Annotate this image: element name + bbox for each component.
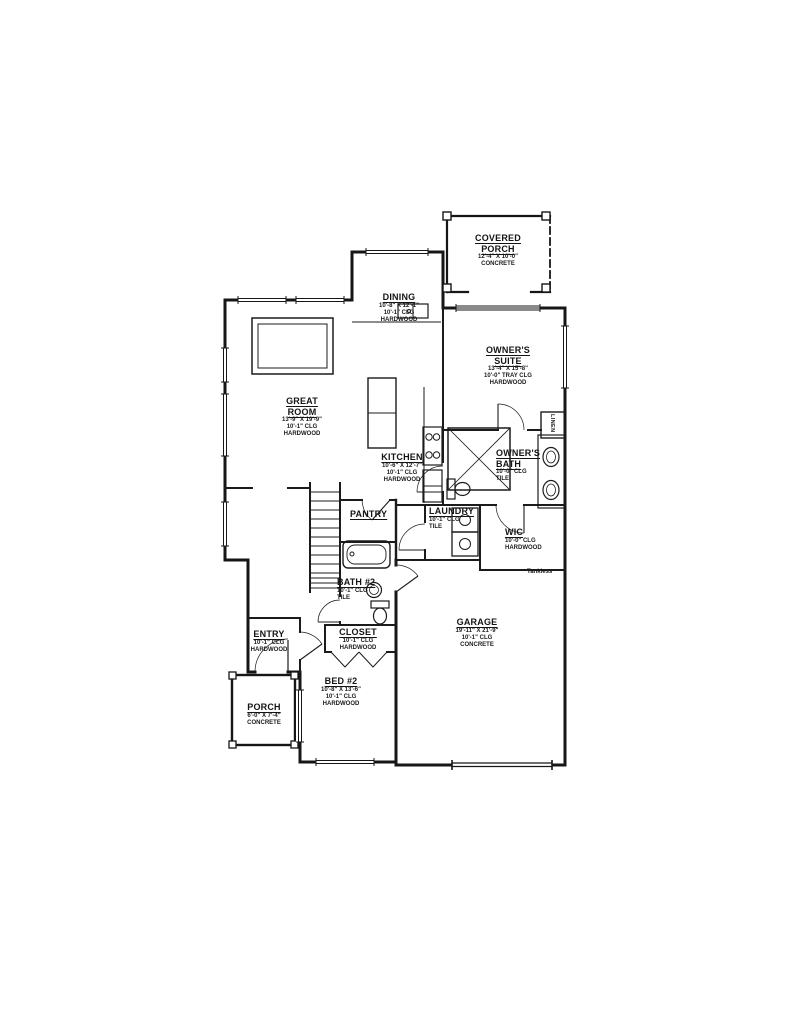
- stairs: [311, 492, 339, 588]
- room-ceiling: 10'-1" CLG: [381, 470, 422, 477]
- room-name: DINING: [379, 292, 419, 303]
- floor-plan-drawing: [0, 0, 791, 1024]
- room-ceiling: 10'-0" CLG: [505, 538, 542, 545]
- room-dims: 13'-4" X 15'-8": [479, 366, 537, 373]
- room-name: KITCHEN: [381, 452, 422, 463]
- room-surface: CONCRETE: [247, 720, 281, 727]
- room-surface: HARDWOOD: [339, 645, 377, 652]
- room-label-garage: GARAGE 19'-11" X 21'-9" 10'-1" CLG CONCR…: [456, 617, 499, 649]
- room-surface: TILE: [337, 595, 375, 602]
- refrigerator: [423, 470, 442, 502]
- room-label-bed-2: BED #2 10'-8" X 13'-6" 10'-1" CLG HARDWO…: [321, 676, 361, 708]
- bed2-door: [300, 644, 322, 660]
- room-ceiling: 10'-0" TRAY CLG: [479, 373, 537, 380]
- bath2-toilet: [371, 601, 389, 624]
- closet-bifold-doors: [331, 652, 387, 667]
- room-surface: TILE: [429, 524, 474, 531]
- room-label-kitchen: KITCHEN 10'-6" X 12'-7" 10'-1" CLG HARDW…: [381, 452, 422, 484]
- room-label-covered-porch: COVERED PORCH 12'-4" X 10'-0" CONCRETE: [469, 233, 527, 268]
- room-label-bath-2: BATH #2 10'-1" CLG TILE: [337, 577, 375, 602]
- room-label-owners-suite: OWNER'S SUITE 13'-4" X 15'-8" 10'-0" TRA…: [479, 345, 537, 387]
- room-name: ENTRY: [251, 629, 288, 640]
- room-surface: HARDWOOD: [479, 380, 537, 387]
- room-surface: HARDWOOD: [321, 701, 361, 708]
- room-label-pantry: PANTRY: [350, 509, 387, 520]
- room-name: GREAT ROOM: [276, 396, 328, 417]
- room-surface: HARDWOOD: [251, 647, 288, 654]
- room-ceiling: 10'-0" CLG: [496, 469, 540, 476]
- tankless-label: Tankless: [527, 569, 552, 575]
- room-ceiling: 10'-1" CLG: [379, 310, 419, 317]
- room-name: PORCH: [247, 702, 281, 713]
- garage-door: [452, 760, 552, 770]
- room-dims: 6'-0" X 7'-4": [247, 713, 281, 720]
- owners-bath-toilet: [447, 479, 470, 499]
- room-ceiling: 10'-1" CLG: [321, 694, 361, 701]
- room-label-wic: WIC 10'-0" CLG HARDWOOD: [505, 527, 542, 552]
- room-ceiling: 10'-1" CLG: [251, 640, 288, 647]
- room-label-owners-bath: OWNER'S BATH 10'-0" CLG TILE: [496, 448, 540, 483]
- room-dims: 10'-6" X 12'-7": [381, 463, 422, 470]
- room-label-porch: PORCH 6'-0" X 7'-4" CONCRETE: [247, 702, 281, 727]
- room-surface: HARDWOOD: [379, 317, 419, 324]
- room-label-closet: CLOSET 10'-1" CLG HARDWOOD: [339, 627, 377, 652]
- media-wall: [252, 318, 333, 374]
- room-ceiling: 10'-1" CLG: [429, 517, 474, 524]
- room-name: BED #2: [321, 676, 361, 687]
- room-surface: CONCRETE: [456, 642, 499, 649]
- room-name: COVERED PORCH: [469, 233, 527, 254]
- room-name: WIC: [505, 527, 542, 538]
- room-ceiling: 10'-1" CLG: [337, 588, 375, 595]
- room-label-dining: DINING 10'-8" X 12'-1" 10'-1" CLG HARDWO…: [379, 292, 419, 324]
- room-label-great-room: GREAT ROOM 13'-9" X 19'-9" 10'-1" CLG HA…: [276, 396, 328, 438]
- room-name: GARAGE: [456, 617, 499, 628]
- room-ceiling: 10'-1" CLG: [276, 424, 328, 431]
- room-name: LAUNDRY: [429, 506, 474, 517]
- room-name: OWNER'S SUITE: [479, 345, 537, 366]
- room-surface: HARDWOOD: [381, 477, 422, 484]
- room-dims: 19'-11" X 21'-9": [456, 628, 499, 635]
- room-dims: 12'-4" X 10'-0": [469, 254, 527, 261]
- stove: [423, 427, 442, 465]
- room-name: CLOSET: [339, 627, 377, 638]
- room-label-laundry: LAUNDRY 10'-1" CLG TILE: [429, 506, 474, 531]
- floor-plan-page: COVERED PORCH 12'-4" X 10'-0" CONCRETE D…: [0, 0, 791, 1024]
- room-name: OWNER'S BATH: [496, 448, 540, 469]
- linen-label: LINEN: [549, 414, 555, 438]
- room-ceiling: 10'-1" CLG: [456, 635, 499, 642]
- room-dims: 10'-8" X 13'-6": [321, 687, 361, 694]
- double-vanity: [538, 435, 565, 508]
- room-label-entry: ENTRY 10'-1" CLG HARDWOOD: [251, 629, 288, 654]
- room-surface: CONCRETE: [469, 261, 527, 268]
- room-ceiling: 10'-1" CLG: [339, 638, 377, 645]
- room-surface: TILE: [496, 476, 540, 483]
- room-name: PANTRY: [350, 509, 387, 520]
- garage-entry-door: [396, 576, 418, 592]
- room-dims: 13'-9" X 19'-9": [276, 417, 328, 424]
- room-name: BATH #2: [337, 577, 375, 588]
- room-surface: HARDWOOD: [505, 545, 542, 552]
- kitchen-island: [368, 378, 396, 448]
- room-dims: 10'-8" X 12'-1": [379, 303, 419, 310]
- bathtub: [343, 541, 390, 568]
- room-surface: HARDWOOD: [276, 431, 328, 438]
